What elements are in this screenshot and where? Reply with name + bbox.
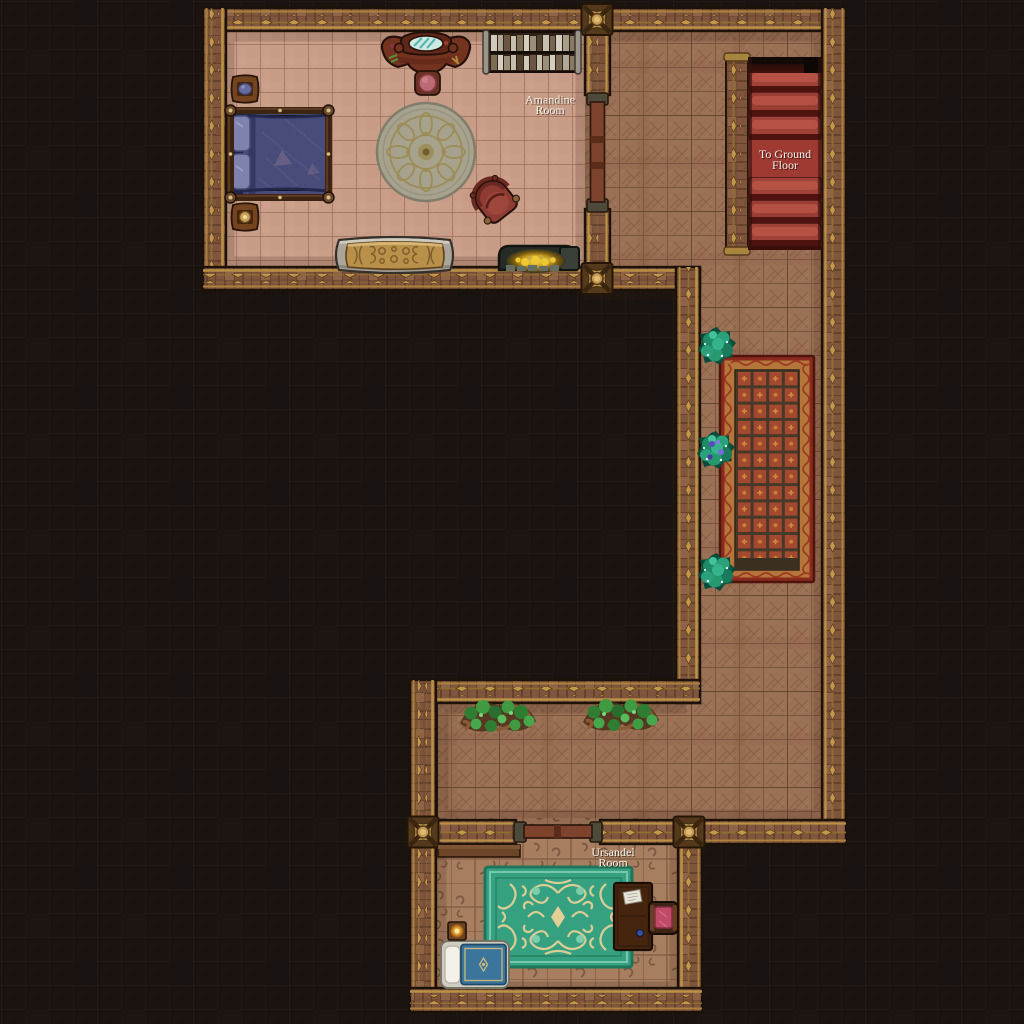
svg-text:Room: Room	[535, 103, 565, 117]
svg-text:Floor: Floor	[772, 158, 798, 172]
svg-text:Room: Room	[598, 856, 628, 870]
